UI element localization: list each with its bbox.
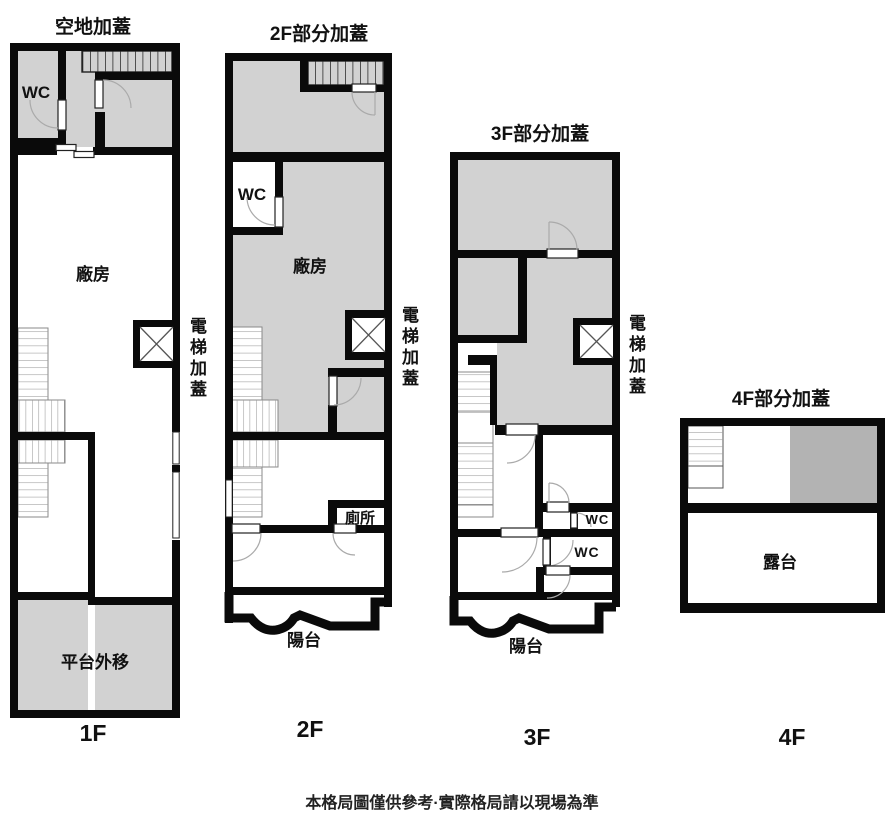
window-1f-right-upper [173,432,179,464]
stairs-2f-top [308,61,384,85]
elevator-3f [573,318,620,365]
window-1f-right-lower [173,472,179,538]
room-label-factory-1f: 廠房 [43,260,143,285]
room-label-wc-2f: WC [232,185,272,205]
room-label-balcony-2f: 陽台 [254,626,354,651]
title-2f: 2F部分加蓋 [249,19,389,46]
title-1f: 空地加蓋 [23,12,163,39]
floor-label-4f: 4F [752,724,832,751]
balcony-3f-outline [454,596,616,633]
floor-label-3f: 3F [497,724,577,751]
room-label-elevator-2f: 電梯加蓋 [398,293,418,403]
elevator-1f [133,320,180,368]
room-label-toilet-2f: 廁所 [330,507,390,528]
stairs-1f-mid [18,328,65,517]
room-label-elevator-1f: 電梯加蓋 [186,304,206,414]
room-label-elevator-3f: 電梯加蓋 [625,301,645,411]
room-label-wc-1f: WC [16,83,56,103]
window-2f-left [226,480,232,517]
balcony-2f-outline [229,592,389,630]
room-label-factory-2f: 廠房 [260,252,360,277]
room-label-wc-upper-3f: WC [580,512,615,527]
floor-label-2f: 2F [270,716,350,743]
stairs-1f-top [82,51,172,72]
title-4f: 4F部分加蓋 [711,384,851,411]
room-label-balcony-3f: 陽台 [476,632,576,657]
floor-4f-plan [680,418,885,613]
floor-2f-plan [225,53,392,630]
disclaimer-text: 本格局圖僅供參考·實際格局請以現場為準 [202,789,702,813]
elevator-2f [345,310,392,360]
floor-plan-page: 空地加蓋 2F部分加蓋 3F部分加蓋 4F部分加蓋 WC 廠房 電梯加蓋 平台外… [0,0,889,817]
floor-3f-plan [450,152,620,633]
stairs-3f [453,372,493,517]
room-label-terrace-4f: 露台 [730,548,830,573]
room-label-platform-1f: 平台外移 [35,648,155,673]
room-label-wc-lower-3f: WC [567,544,607,560]
stairs-4f [688,426,723,488]
floor-label-1f: 1F [53,720,133,747]
title-3f: 3F部分加蓋 [470,119,610,146]
floor-1f-plan [10,43,180,718]
